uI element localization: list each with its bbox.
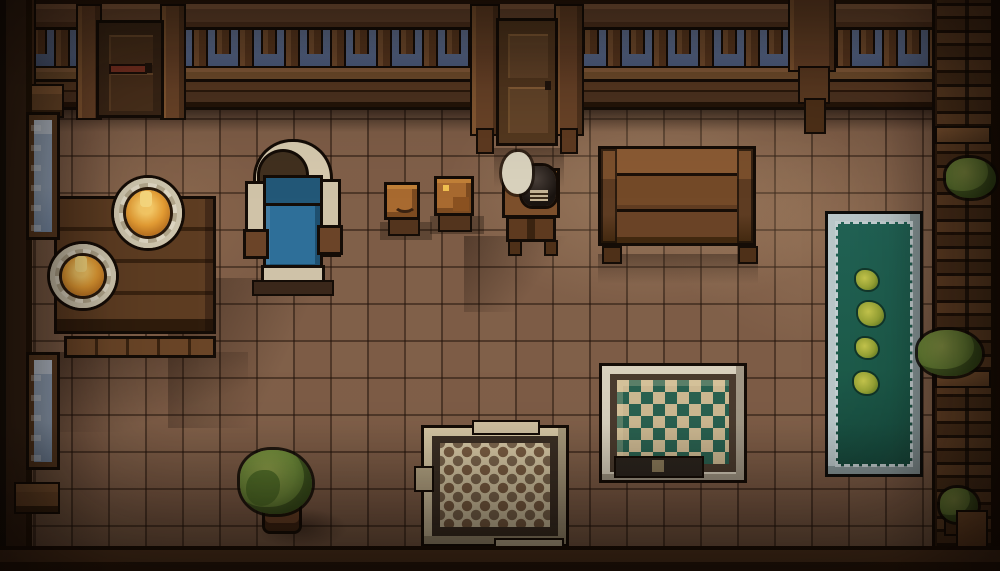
door-panel: [508, 34, 548, 78]
rug-tab: [472, 420, 540, 435]
stool-base: [388, 218, 420, 236]
stool-base: [438, 214, 472, 232]
pillar-foot: [806, 100, 824, 132]
stand-foot: [508, 240, 522, 256]
shelf-wall: [932, 0, 1000, 556]
kettle-label: [530, 190, 548, 201]
window-sill-bracket: [16, 484, 58, 512]
mat-drawer[interactable]: [614, 456, 704, 478]
rug-flower-motif: [858, 302, 884, 326]
window-glass-streaks: [31, 121, 41, 231]
green-runner-rug[interactable]: [828, 214, 920, 474]
door-panel: [109, 35, 153, 65]
food-highlight: [140, 191, 152, 207]
rug-flower-motif: [856, 338, 878, 358]
bed-blanket: [266, 206, 320, 270]
door-knob: [545, 81, 551, 90]
door-left[interactable]: [96, 20, 164, 118]
food-fleck: [443, 185, 449, 191]
shelf-slats: [937, 0, 991, 556]
crate-shade: [453, 197, 469, 211]
wall-pillar: [790, 0, 834, 70]
bed[interactable]: [246, 140, 342, 294]
bench[interactable]: [64, 336, 216, 358]
bed-foot-post: [246, 232, 266, 256]
pillar-foot: [562, 130, 576, 152]
table-leg: [738, 246, 758, 264]
game-room-scene: [0, 0, 1000, 571]
door-latch-bar: [111, 66, 145, 72]
door-frame-pillar: [556, 6, 582, 134]
shelf-plant[interactable]: [918, 330, 982, 376]
rug-tab: [414, 466, 434, 492]
shelf-plant[interactable]: [946, 158, 996, 198]
kettle-stand-apron: [506, 216, 556, 242]
door-panel: [508, 87, 548, 133]
window-lower[interactable]: [26, 352, 60, 470]
rug-flower-motif: [854, 372, 878, 394]
table-side-post: [601, 149, 617, 243]
shelf-plank: [937, 128, 989, 142]
window-upper[interactable]: [26, 112, 60, 240]
door-panel: [109, 73, 153, 111]
rug-flower-motif: [856, 270, 878, 290]
stand-foot: [544, 240, 558, 256]
window-glass-streaks: [31, 361, 41, 461]
left-wall: [0, 0, 32, 556]
woven-rug[interactable]: [424, 428, 566, 544]
food-highlight: [75, 256, 87, 272]
food-plate[interactable]: [114, 178, 182, 248]
table-leg: [602, 246, 622, 264]
shelf-seam: [965, 0, 969, 556]
long-table[interactable]: [598, 146, 756, 246]
stool-with-bowl[interactable]: [384, 182, 420, 220]
mat-latch: [652, 460, 664, 472]
bed-pillow: [266, 178, 320, 208]
table-side-post: [737, 149, 753, 243]
bed-foot-post: [320, 228, 340, 252]
pillar-foot: [478, 130, 492, 152]
door-center[interactable]: [496, 18, 558, 146]
pillar-block: [800, 68, 828, 102]
steam-puff: [502, 152, 532, 194]
bottom-wall: [0, 546, 1000, 571]
wall-outer-edge: [991, 0, 1000, 556]
door-frame-pillar: [162, 6, 184, 118]
bowl-mark: [393, 195, 417, 213]
bed-base: [254, 282, 332, 294]
food-plate[interactable]: [50, 244, 116, 308]
crate-with-food[interactable]: [434, 176, 474, 216]
mat-diamond-field: [617, 380, 729, 464]
rug-weave-field: [440, 443, 550, 527]
door-knob: [145, 63, 152, 73]
door-frame-pillar: [472, 6, 498, 134]
